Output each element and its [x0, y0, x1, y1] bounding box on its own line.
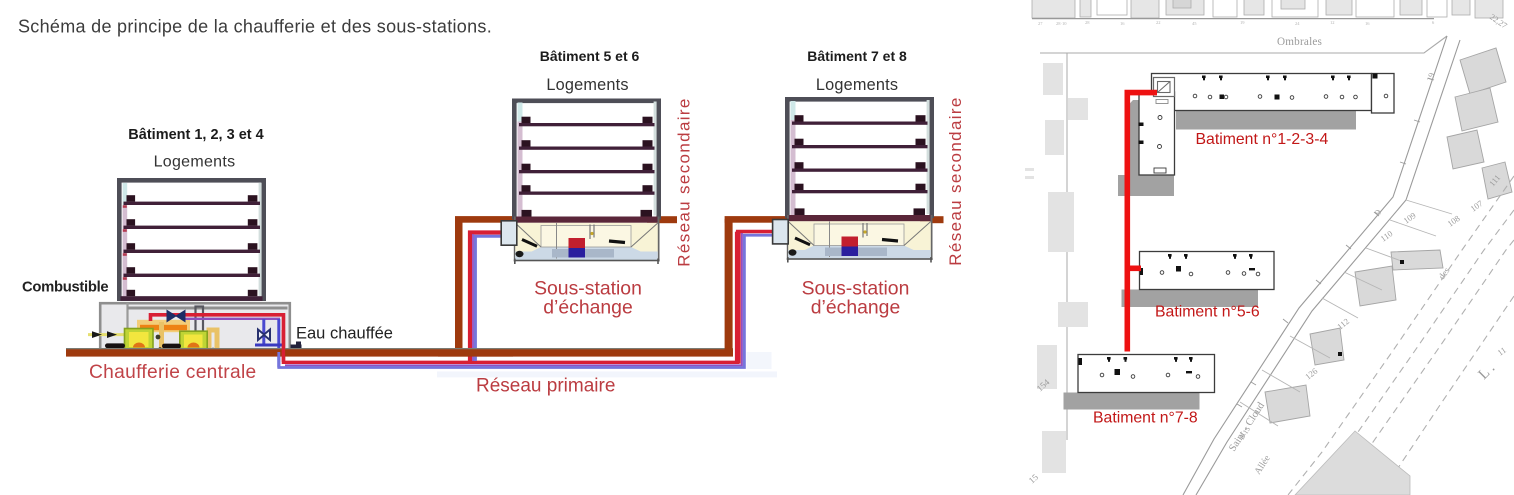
- svg-text:108: 108: [1445, 213, 1461, 229]
- svg-text:Schéma de principe de la chauf: Schéma de principe de la chaufferie et d…: [18, 17, 492, 37]
- svg-text:Réseau primaire: Réseau primaire: [476, 376, 615, 397]
- svg-text:Logements: Logements: [816, 76, 898, 94]
- svg-text:15: 15: [1027, 472, 1041, 486]
- svg-text:Allée: Allée: [1253, 454, 1273, 477]
- svg-text:110: 110: [1378, 228, 1394, 243]
- svg-text:45: 45: [1192, 21, 1197, 26]
- svg-text:Ombrales: Ombrales: [1277, 36, 1322, 48]
- svg-text:126: 126: [1303, 366, 1319, 382]
- svg-text:Combustible: Combustible: [22, 280, 108, 296]
- svg-text:Batiment n°1-2-3-4: Batiment n°1-2-3-4: [1196, 131, 1329, 148]
- svg-text:Logements: Logements: [154, 154, 236, 171]
- svg-text:Batiment n°7-8: Batiment n°7-8: [1093, 410, 1198, 427]
- svg-text:Chaufferie centrale: Chaufferie centrale: [89, 362, 256, 383]
- svg-text:Bâtiment 1, 2, 3 et 4: Bâtiment 1, 2, 3 et 4: [128, 127, 263, 143]
- svg-text:d’échange: d’échange: [543, 297, 633, 319]
- svg-text:Réseau secondaire: Réseau secondaire: [675, 97, 694, 266]
- svg-text:22,27: 22,27: [1488, 11, 1509, 30]
- svg-text:16: 16: [1365, 21, 1370, 26]
- svg-text:24: 24: [1295, 21, 1300, 26]
- svg-text:d’échange: d’échange: [811, 297, 901, 319]
- svg-text:Logements: Logements: [546, 76, 628, 94]
- svg-text:109: 109: [1401, 210, 1417, 226]
- svg-text:12: 12: [1330, 20, 1335, 25]
- svg-text:L .: L .: [1476, 360, 1499, 383]
- svg-text:16: 16: [1120, 21, 1125, 26]
- svg-text:27: 27: [1038, 21, 1043, 26]
- svg-text:Réseau secondaire: Réseau secondaire: [946, 96, 965, 265]
- svg-text:11: 11: [1495, 345, 1507, 358]
- svg-text:6: 6: [1432, 20, 1435, 25]
- svg-text:Bâtiment 7 et 8: Bâtiment 7 et 8: [807, 48, 907, 64]
- svg-text:Bâtiment 5 et 6: Bâtiment 5 et 6: [540, 48, 640, 64]
- svg-text:9: 9: [1372, 208, 1383, 215]
- svg-text:28: 28: [1085, 20, 1090, 25]
- svg-text:Eau chauffée: Eau chauffée: [296, 325, 393, 343]
- svg-text:107: 107: [1468, 198, 1484, 214]
- svg-text:19: 19: [1240, 20, 1245, 25]
- svg-text:22: 22: [1156, 20, 1161, 25]
- svg-text:Batiment n°5-6: Batiment n°5-6: [1155, 304, 1260, 321]
- svg-text:28·10: 28·10: [1056, 21, 1067, 26]
